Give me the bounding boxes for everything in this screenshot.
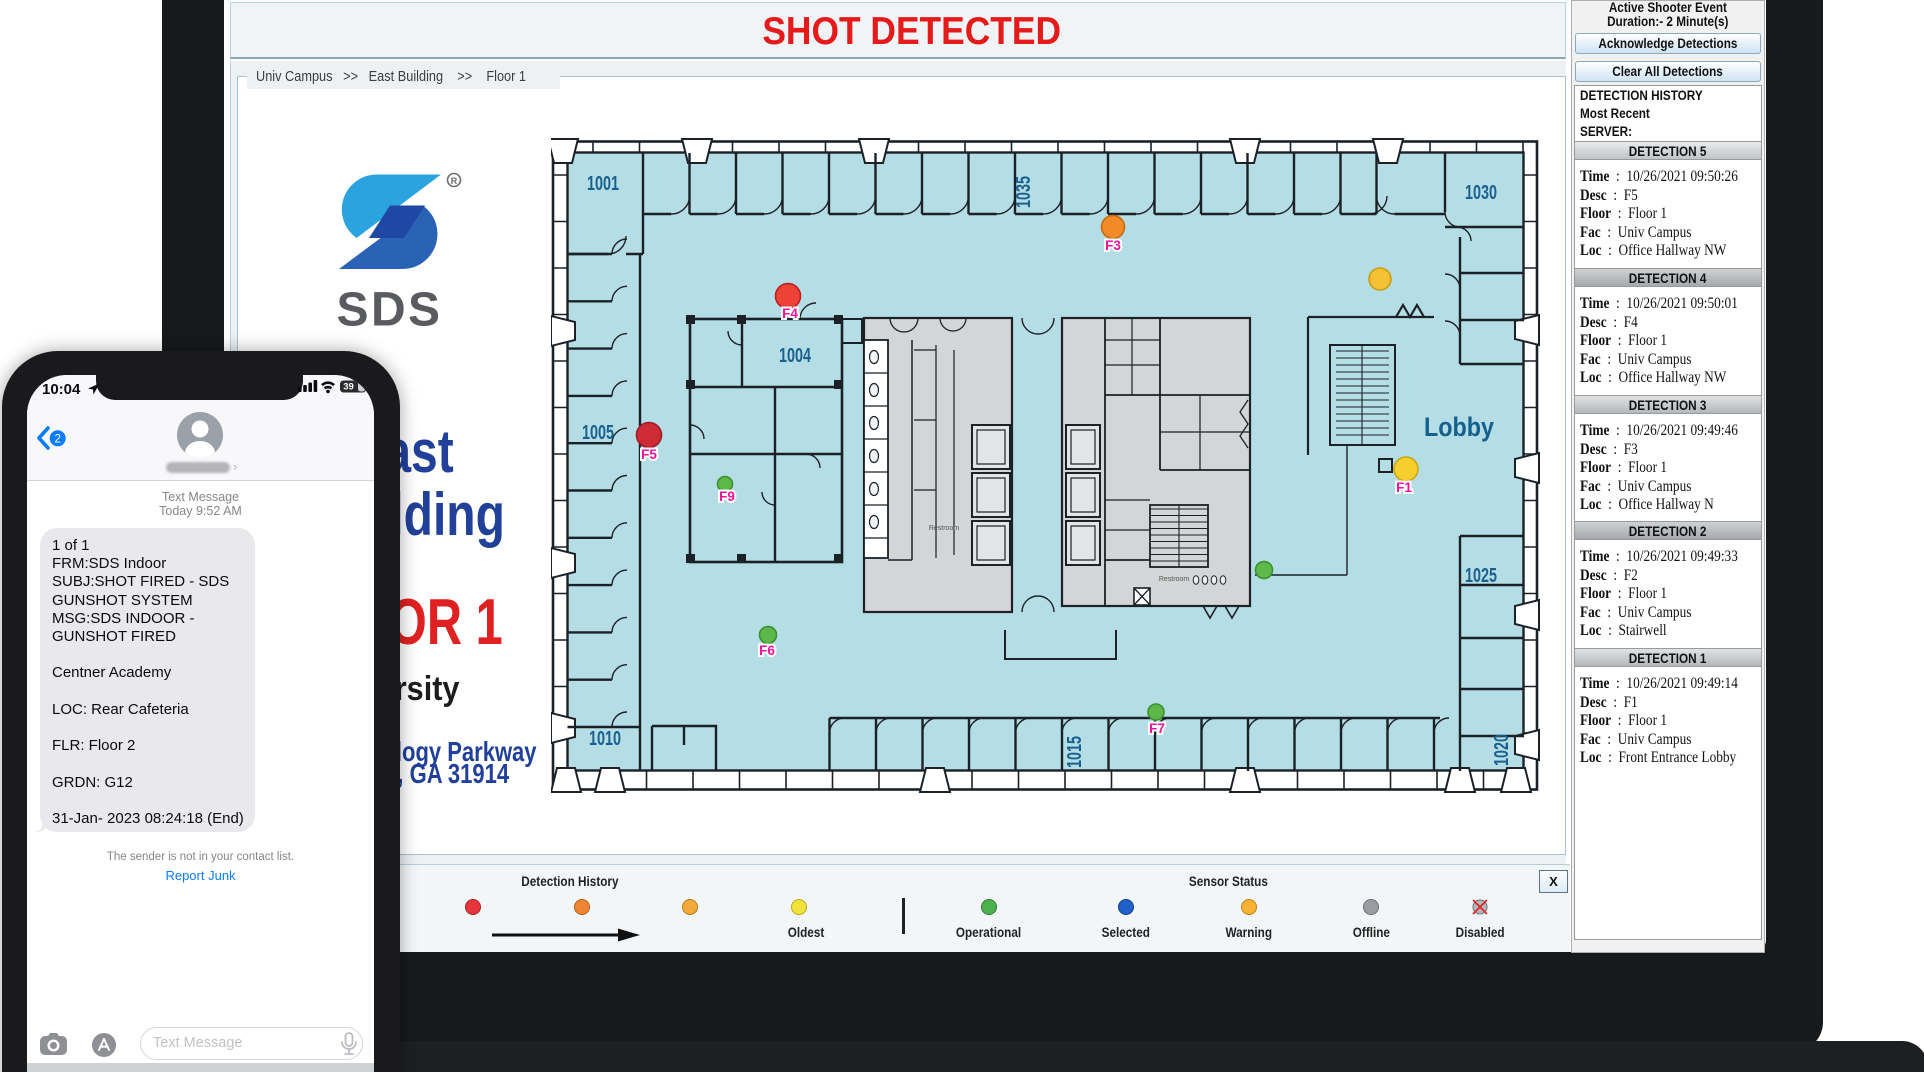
svg-text:1025: 1025 <box>1465 565 1497 587</box>
svg-text:F5: F5 <box>641 447 657 462</box>
svg-text:F7: F7 <box>1149 721 1165 736</box>
svg-text:1020: 1020 <box>1491 734 1513 766</box>
svg-text:R: R <box>451 176 458 186</box>
svg-text:F6: F6 <box>759 643 775 658</box>
svg-text:2: 2 <box>54 433 60 445</box>
svg-text:1015: 1015 <box>1064 736 1086 768</box>
svg-text:F9: F9 <box>719 489 735 504</box>
svg-text:F1: F1 <box>1396 480 1412 495</box>
svg-text:F4: F4 <box>782 306 798 321</box>
svg-text:39: 39 <box>343 382 354 393</box>
svg-text:1030: 1030 <box>1465 182 1497 204</box>
svg-text:Lobby: Lobby <box>1424 412 1494 442</box>
svg-text:1035: 1035 <box>1013 176 1035 208</box>
svg-text:F3: F3 <box>1105 238 1121 253</box>
svg-text:SDS: SDS <box>337 284 443 337</box>
svg-text:1010: 1010 <box>589 728 621 750</box>
svg-text:1004: 1004 <box>779 345 812 367</box>
svg-text:1005: 1005 <box>582 422 614 444</box>
svg-text:Restroom: Restroom <box>929 525 960 532</box>
svg-text:Restroom: Restroom <box>1159 576 1190 583</box>
svg-text:1001: 1001 <box>587 173 619 195</box>
